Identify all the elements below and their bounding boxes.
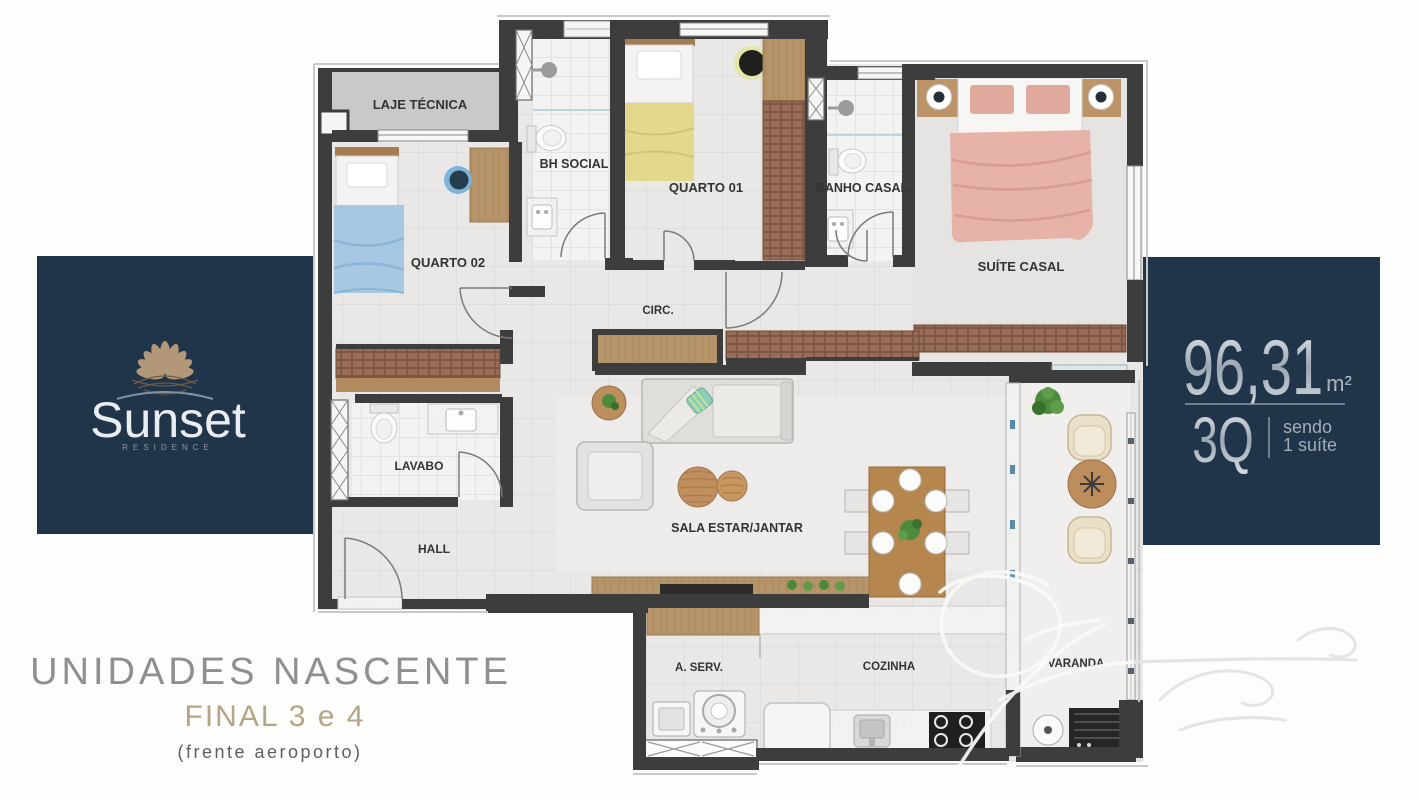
- svg-text:QUARTO 01: QUARTO 01: [669, 180, 743, 195]
- svg-text:1 suíte: 1 suíte: [1283, 435, 1337, 455]
- svg-text:(frente aeroporto): (frente aeroporto): [177, 742, 362, 762]
- svg-text:BANHO CASAL: BANHO CASAL: [816, 181, 909, 195]
- svg-text:COZINHA: COZINHA: [863, 661, 915, 673]
- svg-text:UNIDADES NASCENTE: UNIDADES NASCENTE: [30, 651, 512, 693]
- svg-text:QUARTO 02: QUARTO 02: [411, 255, 485, 270]
- svg-text:FINAL 3 e 4: FINAL 3 e 4: [185, 700, 366, 733]
- svg-text:RESIDENCE: RESIDENCE: [122, 443, 214, 452]
- svg-text:m²: m²: [1326, 371, 1352, 396]
- svg-text:BH SOCIAL: BH SOCIAL: [540, 157, 609, 171]
- svg-text:Sunset: Sunset: [90, 392, 246, 448]
- svg-text:LAVABO: LAVABO: [395, 459, 444, 473]
- svg-text:SALA ESTAR/JANTAR: SALA ESTAR/JANTAR: [671, 521, 803, 535]
- svg-text:3Q: 3Q: [1192, 405, 1253, 476]
- svg-text:CIRC.: CIRC.: [642, 305, 673, 317]
- svg-text:sendo: sendo: [1283, 417, 1332, 437]
- svg-text:HALL: HALL: [418, 542, 450, 556]
- svg-text:SUÍTE CASAL: SUÍTE CASAL: [978, 259, 1065, 274]
- svg-text:96,31: 96,31: [1183, 324, 1324, 411]
- svg-text:LAJE TÉCNICA: LAJE TÉCNICA: [373, 97, 468, 112]
- svg-text:A. SERV.: A. SERV.: [675, 662, 723, 674]
